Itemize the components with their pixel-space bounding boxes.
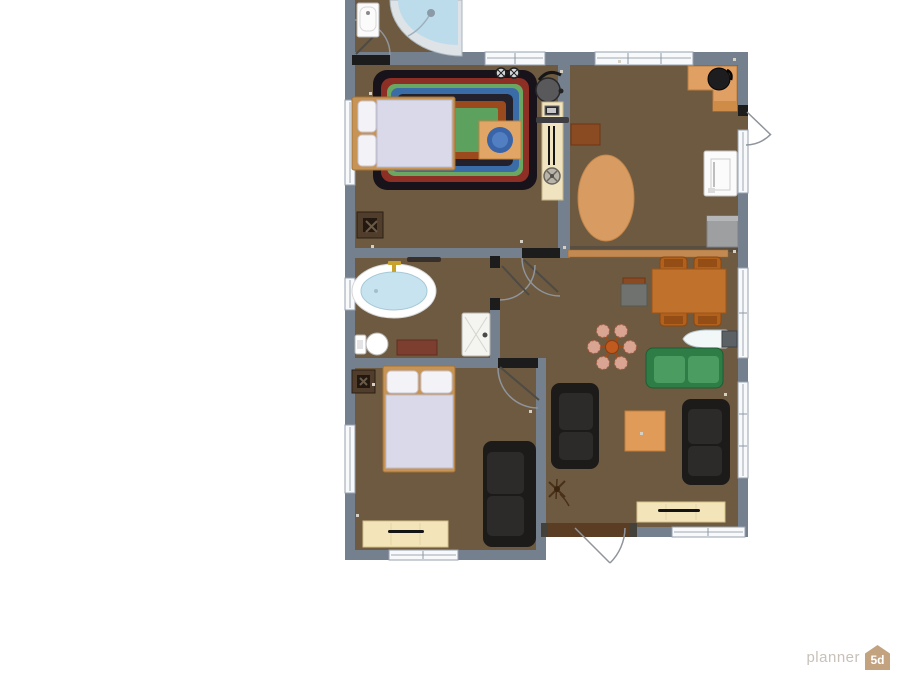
bed1-blanket bbox=[377, 100, 452, 167]
door-threshold-bedroom2[interactable] bbox=[498, 358, 538, 368]
corner-desk-trim bbox=[713, 101, 737, 111]
office-chair[interactable] bbox=[708, 68, 730, 90]
bed1-pillow-a bbox=[358, 101, 376, 132]
console-shelf[interactable] bbox=[568, 250, 728, 257]
door-threshold-hall[interactable] bbox=[522, 248, 560, 258]
bed2-pillow-b bbox=[421, 371, 452, 393]
bed1-pillow-b bbox=[358, 135, 376, 166]
side-desk[interactable] bbox=[621, 284, 647, 306]
ironing-board-block bbox=[722, 331, 737, 347]
plant-petal-1 bbox=[624, 341, 637, 354]
door-jamb-right-upper bbox=[738, 105, 748, 116]
fridge-vent bbox=[708, 188, 715, 193]
dining-chair-3-seat bbox=[664, 316, 683, 324]
floorplan-stage: planner 5d bbox=[0, 0, 900, 675]
side-table[interactable] bbox=[571, 124, 600, 145]
planner5d-logo-icon: 5d bbox=[865, 645, 890, 670]
appliance-top bbox=[707, 216, 738, 221]
corner-dot bbox=[724, 393, 727, 396]
cabinet-wheel-dot bbox=[550, 174, 554, 178]
planner5d-watermark: planner 5d bbox=[806, 645, 890, 670]
bathtub-faucet-bar bbox=[388, 261, 401, 265]
entry-threshold[interactable] bbox=[545, 523, 633, 537]
door-threshold-bath-top[interactable] bbox=[352, 55, 390, 65]
floorplan-canvas bbox=[0, 0, 900, 675]
plant-petal-4 bbox=[588, 341, 601, 354]
coffee-table[interactable] bbox=[625, 411, 665, 451]
cabinet-rail-b bbox=[553, 126, 555, 165]
pot-body[interactable] bbox=[536, 78, 560, 102]
bed2-pillow-a bbox=[387, 371, 418, 393]
plant-center[interactable] bbox=[606, 341, 619, 354]
door-leaf-right-exterior bbox=[747, 112, 771, 135]
sink-faucet bbox=[366, 11, 370, 15]
sofa-left-cushion-b bbox=[559, 432, 593, 460]
door-opening-bath bbox=[490, 268, 500, 298]
corner-dot bbox=[529, 410, 532, 413]
toilet-button bbox=[357, 340, 363, 349]
dining-table[interactable] bbox=[652, 269, 726, 313]
door-panel-handle bbox=[483, 333, 488, 338]
corner-dot bbox=[733, 250, 736, 253]
cabinet-display-inner bbox=[547, 108, 556, 113]
corner-dot bbox=[372, 383, 375, 386]
sofa-right-cushion-a bbox=[688, 409, 722, 444]
pot-knob bbox=[559, 89, 564, 94]
bathtub-water bbox=[361, 272, 427, 310]
towel-rail[interactable] bbox=[407, 257, 441, 262]
plant-petal-2 bbox=[615, 325, 628, 338]
plant-petal-3 bbox=[597, 325, 610, 338]
corner-dot bbox=[618, 60, 621, 63]
bath-mat[interactable] bbox=[397, 340, 437, 355]
cabinet-rail-a bbox=[548, 126, 550, 165]
corner-dot bbox=[520, 240, 523, 243]
corner-dot bbox=[563, 246, 566, 249]
cushion-center bbox=[492, 132, 508, 148]
corner-dot bbox=[640, 432, 643, 435]
corner-dot bbox=[733, 58, 736, 61]
toilet-bowl bbox=[366, 333, 388, 355]
exercise-cabinet[interactable] bbox=[542, 102, 563, 200]
sofa-left-cushion-a bbox=[559, 393, 593, 430]
dining-chair-2-seat bbox=[698, 259, 717, 267]
watermark-word: planner bbox=[806, 649, 860, 666]
sofa-green-cushion-a bbox=[654, 356, 685, 383]
dining-chair-4-seat bbox=[698, 316, 717, 324]
dresser[interactable] bbox=[363, 521, 448, 547]
sofa-bedroom-cushion-b bbox=[487, 496, 524, 536]
corner-dot bbox=[356, 514, 359, 517]
dresser-handle bbox=[388, 530, 424, 533]
door-jamb-bath-lower bbox=[490, 298, 500, 310]
entry-jamb-right bbox=[630, 523, 637, 537]
corner-dot bbox=[369, 92, 372, 95]
plant-petal-6 bbox=[615, 357, 628, 370]
sofa-green-cushion-b bbox=[688, 356, 719, 383]
bed2-blanket bbox=[386, 395, 453, 468]
corner-dot bbox=[560, 70, 563, 73]
door-jamb-bath-upper bbox=[490, 256, 500, 268]
dry-plant-center[interactable] bbox=[554, 486, 560, 492]
corner-dot bbox=[371, 245, 374, 248]
door-arc-right-exterior[interactable] bbox=[746, 134, 771, 145]
entry-jamb-left bbox=[541, 523, 548, 537]
tv-stand-handle bbox=[658, 509, 700, 512]
sofa-right-cushion-b bbox=[688, 446, 722, 476]
oval-rug[interactable] bbox=[578, 155, 634, 241]
watermark-badge-text: 5d bbox=[870, 651, 884, 670]
cabinet-bar bbox=[536, 117, 569, 123]
dining-chair-1-seat bbox=[664, 259, 683, 267]
bathtub-faucet-stem bbox=[392, 265, 396, 272]
plant-petal-5 bbox=[597, 357, 610, 370]
sofa-bedroom-cushion-a bbox=[487, 452, 524, 494]
bathtub-drain bbox=[374, 289, 378, 293]
shower-head bbox=[427, 9, 435, 17]
